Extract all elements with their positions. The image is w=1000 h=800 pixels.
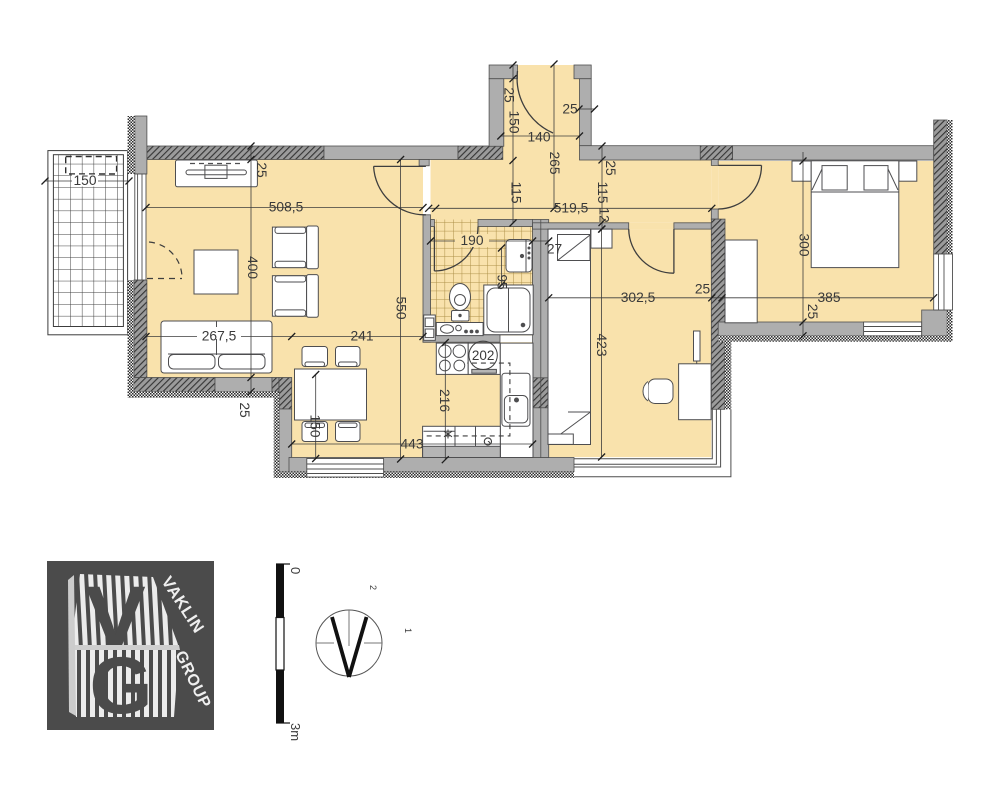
svg-text:300: 300 [796, 233, 811, 256]
svg-text:27: 27 [547, 242, 562, 257]
svg-text:95: 95 [495, 274, 510, 290]
svg-text:G: G [89, 641, 152, 731]
svg-text:302,5: 302,5 [621, 290, 656, 305]
svg-text:140: 140 [527, 130, 550, 145]
svg-text:25: 25 [695, 282, 711, 297]
svg-text:443: 443 [400, 437, 423, 452]
svg-text:25: 25 [603, 160, 618, 176]
svg-text:202: 202 [472, 348, 495, 363]
svg-text:150: 150 [308, 414, 323, 437]
svg-text:0: 0 [288, 567, 303, 574]
svg-text:241: 241 [350, 329, 373, 344]
svg-text:25: 25 [502, 87, 517, 103]
svg-text:190: 190 [460, 233, 483, 248]
svg-text:115: 115 [509, 182, 524, 204]
svg-text:25: 25 [805, 304, 820, 320]
svg-text:508,5: 508,5 [269, 200, 304, 215]
svg-text:519,5: 519,5 [554, 201, 589, 216]
svg-text:150: 150 [73, 173, 96, 188]
svg-text:115: 115 [595, 182, 610, 204]
svg-text:25: 25 [237, 402, 252, 418]
svg-text:150: 150 [507, 110, 522, 133]
svg-text:2: 2 [368, 585, 378, 590]
svg-text:25: 25 [254, 162, 269, 178]
svg-text:216: 216 [437, 389, 452, 412]
svg-text:12: 12 [597, 207, 612, 222]
svg-text:400: 400 [245, 256, 260, 279]
svg-text:550: 550 [394, 296, 409, 319]
svg-text:1: 1 [403, 628, 413, 633]
svg-text:265: 265 [547, 151, 562, 174]
svg-text:25: 25 [562, 102, 578, 117]
svg-text:385: 385 [817, 290, 840, 305]
svg-text:423: 423 [594, 333, 609, 356]
svg-text:267,5: 267,5 [202, 329, 237, 344]
svg-text:3m: 3m [288, 723, 303, 741]
